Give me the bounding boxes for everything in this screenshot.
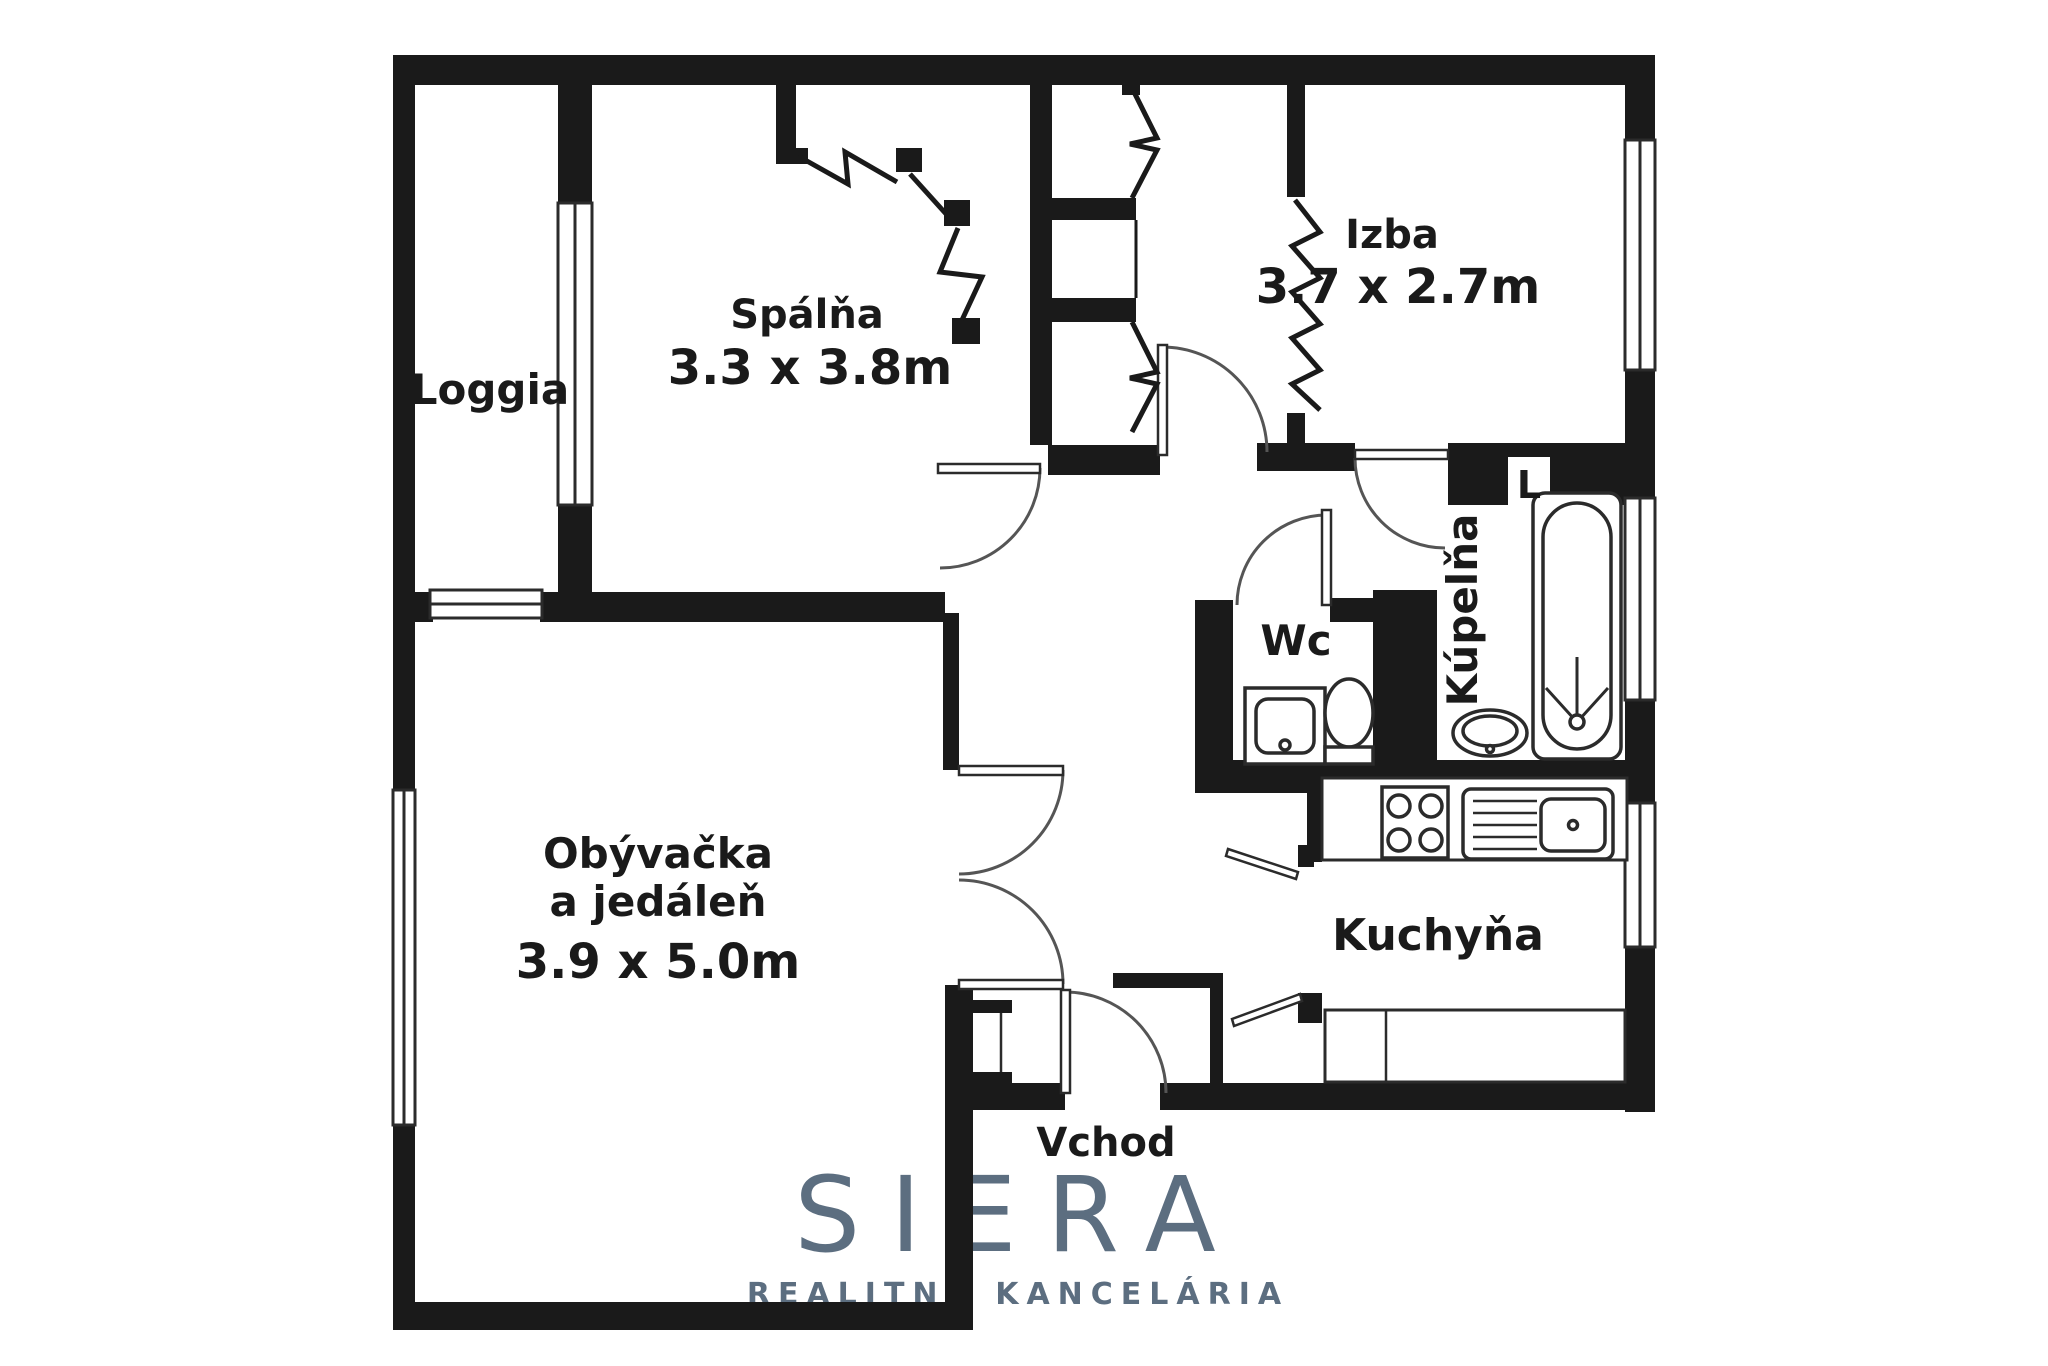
door-leaf-icon (959, 980, 1063, 989)
wall-segment (776, 83, 796, 155)
bathtub-icon (1533, 493, 1621, 759)
room-dims-izba: 3.7 x 2.7m (1256, 259, 1540, 315)
wardrobe-folding-door-icon (910, 174, 947, 215)
wall-segment (1625, 55, 1655, 140)
window-icon (1625, 498, 1655, 700)
room-label-obyvacka-line2: a jedáleň (549, 877, 766, 926)
wardrobe-folding-door-icon (940, 228, 982, 320)
wall-segment (1508, 443, 1550, 457)
wall-segment (1625, 700, 1655, 803)
floor-plan-canvas: SIERA REALITNÁ KANCELÁRIA (0, 0, 2048, 1366)
door-leaf-icon (1232, 994, 1302, 1026)
window-icon (393, 790, 415, 1125)
wall-segment (896, 148, 922, 172)
door-leaf-icon (938, 464, 1040, 473)
room-dims-obyvacka: 3.9 x 5.0m (516, 934, 800, 990)
door-leaf-icon (1322, 510, 1331, 605)
door-arc-icon (959, 880, 1063, 984)
wall-segment (1113, 973, 1223, 988)
room-label-wc: Wc (1260, 616, 1331, 665)
wardrobe-folding-door-icon (1130, 322, 1157, 432)
wall-segment (540, 592, 945, 622)
wall-segment (1030, 83, 1052, 445)
window-icon (430, 590, 542, 618)
wall-segment (945, 985, 973, 1330)
wall-segment (945, 1083, 1065, 1110)
wall-segment (1052, 298, 1136, 322)
washbasin-icon (1453, 710, 1527, 756)
door-leaf-icon (1158, 345, 1167, 455)
room-label-spalna: Spálňa (730, 292, 884, 338)
wall-segment (1287, 413, 1305, 445)
room-label-obyvacka-line1: Obývačka (543, 829, 773, 878)
wall-segment (393, 85, 415, 790)
pantry-label: L (1517, 463, 1541, 507)
window-icon (1625, 140, 1655, 370)
window-icon (558, 203, 592, 505)
wall-segment (1210, 975, 1223, 1087)
door-arc-icon (940, 468, 1040, 568)
wall-segment (558, 55, 592, 205)
door-leaf-icon (1226, 849, 1298, 879)
door-arc-icon (1237, 515, 1327, 605)
stove-icon (1382, 787, 1448, 858)
wall-segment (952, 318, 980, 344)
wall-segment (1257, 443, 1355, 471)
door-arc-icon (1065, 992, 1166, 1093)
door-arc-icon (959, 770, 1063, 874)
kitchen-sink-icon (1463, 789, 1613, 859)
door-leaf-icon (959, 766, 1063, 775)
wall-segment (1448, 443, 1508, 505)
window-icon (1625, 803, 1655, 947)
wall-segment (958, 1000, 1012, 1013)
brand-watermark: SIERA REALITNÁ KANCELÁRIA (747, 1154, 1289, 1312)
wall-segment (943, 613, 959, 770)
kitchen-counter-icon (1325, 1010, 1625, 1082)
door-arc-icon (1355, 458, 1445, 548)
room-dims-spalna: 3.3 x 3.8m (668, 340, 952, 396)
room-label-izba: Izba (1345, 212, 1439, 258)
wall-segment (1307, 775, 1322, 862)
wall-segment (393, 1302, 973, 1330)
toilet-icon (1325, 679, 1373, 764)
wall-segment (1160, 1083, 1655, 1110)
wall-segment (1330, 598, 1375, 622)
door-arc-icon (1162, 347, 1267, 452)
room-label-loggia: Loggia (411, 365, 569, 414)
wardrobe-folding-door-icon (798, 152, 897, 184)
wall-segment (393, 1125, 415, 1330)
room-label-kuchyna: Kuchyňa (1332, 910, 1544, 961)
brand-logo-text: SIERA (794, 1154, 1246, 1276)
wall-segment (1287, 85, 1305, 197)
wall-segment (393, 592, 433, 622)
door-leaf-icon (1355, 450, 1448, 459)
floor-plan-svg: SIERA REALITNÁ KANCELÁRIA (0, 0, 2048, 1366)
wall-segment (1625, 947, 1655, 1112)
wall-segment (1625, 370, 1655, 498)
wall-segment (1052, 198, 1136, 220)
room-label-kupelna: Kúpelňa (1438, 514, 1487, 707)
wardrobe-folding-door-icon (1130, 88, 1157, 198)
wall-segment (1048, 445, 1160, 475)
door-leaf-icon (1061, 990, 1070, 1093)
washbasin-icon (1245, 688, 1325, 764)
entrance-label: Vchod (1036, 1120, 1175, 1166)
